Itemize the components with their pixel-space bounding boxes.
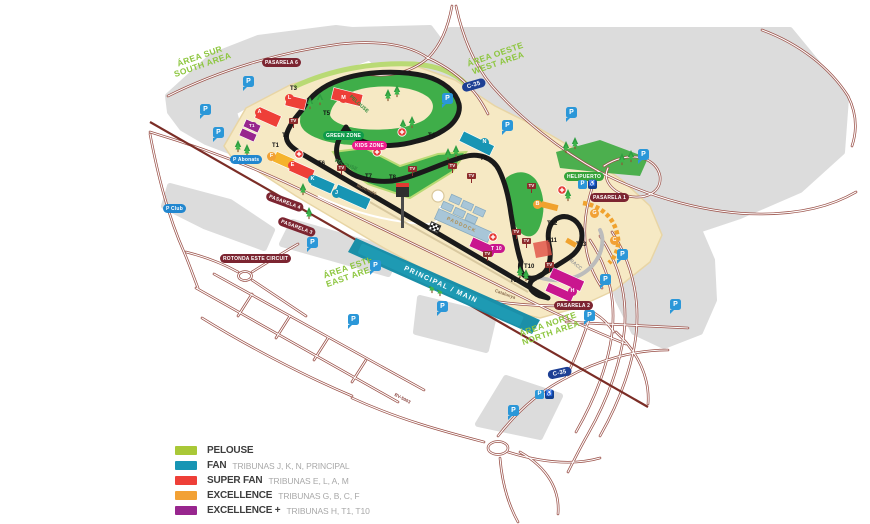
turn-label-t8: T8 (389, 175, 396, 181)
legend-swatch-excellence-plus (175, 506, 197, 515)
wheelchair-icon: ♿ (588, 180, 597, 189)
legend-swatch-excellence (175, 491, 197, 500)
legend-swatch-pelouse (175, 446, 197, 455)
legend-swatch-fan (175, 461, 197, 470)
parking-icon: P (670, 299, 681, 310)
tv-tower-icon: TV (408, 166, 417, 176)
turn-label-t7: T7 (365, 174, 372, 180)
legend-label-excellence: EXCELLENCE (207, 490, 272, 501)
tribune-n: N (480, 138, 489, 147)
tribune-g: G (590, 209, 599, 218)
parking-icon: P (617, 249, 628, 260)
parking-icon: P (578, 180, 587, 189)
circuit-map: ÁREA SUR SOUTH AREA ÁREA OESTE WEST AREA… (0, 0, 870, 524)
parking-icon: P (535, 390, 544, 399)
legend-row-excellence: EXCELLENCE TRIBUNAS G, B, C, F (175, 488, 370, 503)
tv-tower-icon: TV (512, 229, 521, 239)
parking-icon: P (584, 310, 595, 321)
badge-pasarela-1: PASARELA 1 (590, 193, 629, 202)
tribune-k: K (308, 175, 317, 184)
turn-label-t2: T2 (282, 133, 289, 139)
parking-icon: P (638, 149, 649, 160)
turn-label-t13: T13 (576, 242, 586, 248)
parking-icon: P (213, 127, 224, 138)
turn-label-t11: T11 (547, 238, 557, 244)
tribune-h: H (568, 287, 577, 296)
parking-icon: P (348, 314, 359, 325)
parking-icon: P (600, 274, 611, 285)
legend-sublabel-super-fan: TRIBUNAS E, L, A, M (268, 476, 348, 486)
tribune-j: J (332, 189, 341, 198)
tv-tower-icon: TV (289, 118, 298, 128)
legend-row-pelouse: PELOUSE (175, 443, 370, 458)
parking-icon: P (370, 260, 381, 271)
accessible-parking-icon: P ♿ (535, 390, 554, 399)
parking-icon: P (442, 93, 453, 104)
parking-icon: P (502, 120, 513, 131)
badge-pasarela-6: PASARELA 6 (262, 58, 301, 67)
tv-tower-icon: TV (483, 251, 492, 261)
legend-label-pelouse: PELOUSE (207, 445, 253, 456)
inner-roundabout (432, 190, 444, 202)
badge-parking-abonats: P Abonats (230, 155, 262, 164)
turn-label-t6: T6 (318, 161, 325, 167)
turn-label-t1: T1 (272, 143, 279, 149)
turn-label-t5: T5 (323, 111, 330, 117)
legend-sublabel-fan: TRIBUNAS J, K, N, PRINCIPAL (232, 461, 349, 471)
wheelchair-icon: ♿ (545, 390, 554, 399)
badge-rotonda-este: ROTONDA ESTE CIRCUIT (220, 254, 291, 263)
legend-row-excellence-plus: EXCELLENCE + TRIBUNAS H, T1, T10 (175, 503, 370, 518)
turn-label-t9: T9 (480, 156, 487, 162)
badge-green-zone: GREEN ZONE (323, 131, 364, 140)
turn-label-t4: T4 (428, 133, 435, 139)
tv-tower-icon: TV (467, 173, 476, 183)
parking-icon: P (243, 76, 254, 87)
tv-tower-icon: TV (545, 262, 554, 272)
parking-icon: P (508, 405, 519, 416)
tribune-m: M (339, 94, 348, 103)
turn-label-t12: T12 (547, 221, 557, 227)
parking-icon: P (437, 301, 448, 312)
badge-pasarela-2: PASARELA 2 (554, 301, 593, 310)
tv-tower-icon: TV (522, 238, 531, 248)
legend-label-excellence-plus: EXCELLENCE + (207, 505, 280, 516)
legend: PELOUSE FAN TRIBUNAS J, K, N, PRINCIPAL … (175, 443, 370, 518)
legend-swatch-super-fan (175, 476, 197, 485)
tribune-b: B (533, 200, 542, 209)
turn-label-t10: T10 (524, 264, 534, 270)
turn-label-t14: T14 (510, 278, 520, 284)
tribune-t1: T1 (247, 122, 257, 129)
legend-label-fan: FAN (207, 460, 226, 471)
tribune-e: E (288, 161, 297, 170)
tv-tower-icon: TV (337, 165, 346, 175)
parking-icon: P (566, 107, 577, 118)
legend-sublabel-excellence-plus: TRIBUNAS H, T1, T10 (286, 506, 369, 516)
badge-parking-club: P Club (163, 204, 186, 213)
parking-icon: P (200, 104, 211, 115)
legend-row-fan: FAN TRIBUNAS J, K, N, PRINCIPAL (175, 458, 370, 473)
tribune-c: C (610, 236, 619, 245)
tribune-l: L (285, 94, 294, 103)
map-base-graphic (0, 0, 870, 524)
badge-kids-zone: KIDS ZONE (352, 141, 387, 150)
legend-label-super-fan: SUPER FAN (207, 475, 262, 486)
turn-label-t3: T3 (290, 86, 297, 92)
tribune-f: F (267, 152, 276, 161)
tv-tower-icon: TV (448, 163, 457, 173)
tribune-a: A (255, 108, 264, 117)
tv-tower-icon: TV (527, 183, 536, 193)
parking-icon: P (307, 237, 318, 248)
accessible-parking-icon: P ♿ (578, 180, 597, 189)
legend-sublabel-excellence: TRIBUNAS G, B, C, F (278, 491, 359, 501)
legend-row-super-fan: SUPER FAN TRIBUNAS E, L, A, M (175, 473, 370, 488)
